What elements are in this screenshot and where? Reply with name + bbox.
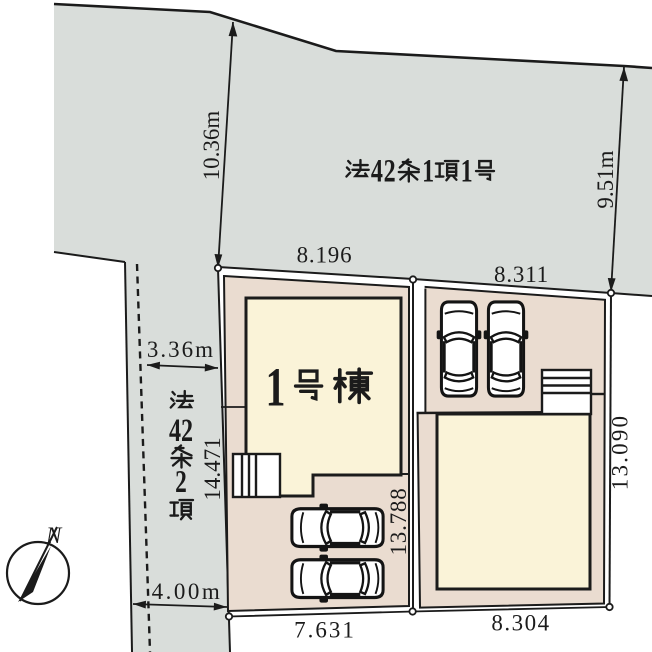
svg-text:13.090: 13.090: [608, 414, 633, 490]
svg-text:1: 1: [266, 357, 286, 418]
svg-text:8.311: 8.311: [494, 262, 549, 287]
svg-text:13.788: 13.788: [386, 487, 411, 555]
svg-text:2: 2: [384, 153, 396, 190]
svg-text:1: 1: [461, 153, 473, 190]
svg-text:42: 42: [169, 412, 193, 449]
svg-text:4: 4: [371, 153, 383, 190]
svg-text:10.36m: 10.36m: [199, 111, 224, 181]
svg-text:1: 1: [422, 153, 434, 190]
svg-text:8.304: 8.304: [491, 611, 550, 636]
svg-text:7.631: 7.631: [294, 618, 356, 643]
svg-text:8.196: 8.196: [297, 243, 353, 268]
svg-text:9.51m: 9.51m: [593, 150, 618, 208]
svg-text:3.36m: 3.36m: [147, 337, 215, 362]
svg-text:2: 2: [175, 465, 187, 500]
svg-text:4.00m: 4.00m: [152, 579, 223, 604]
svg-text:N: N: [45, 523, 63, 548]
svg-text:14.471: 14.471: [200, 437, 225, 500]
